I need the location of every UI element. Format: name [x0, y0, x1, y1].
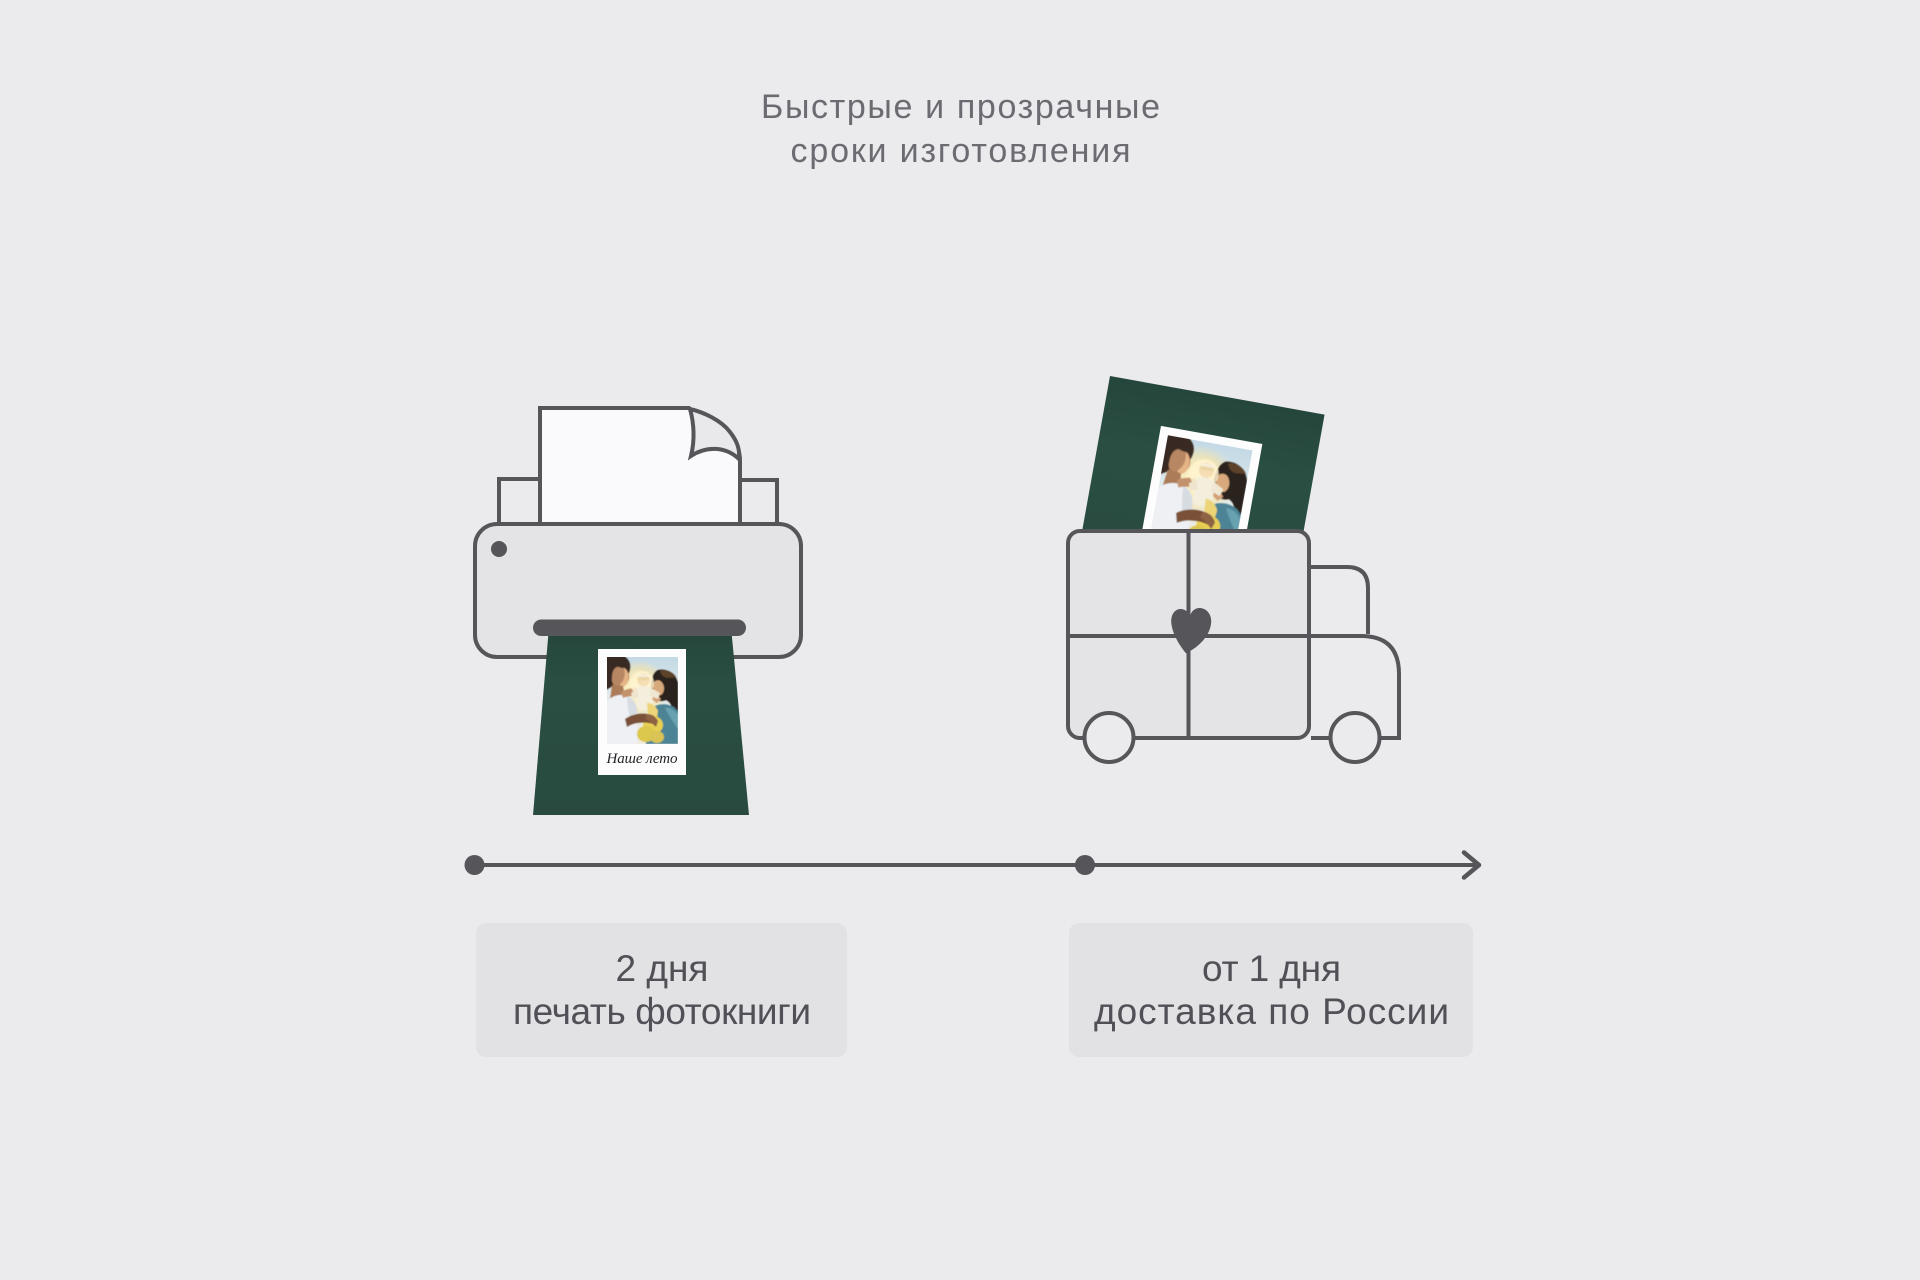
svg-text:от 1 дня: от 1 дня [1202, 948, 1341, 989]
svg-text:Быстрые и прозрачные: Быстрые и прозрачные [761, 88, 1160, 126]
svg-text:доставка по России: доставка по России [1094, 991, 1449, 1032]
svg-text:сроки изготовления: сроки изготовления [791, 132, 1131, 170]
svg-text:2 дня: 2 дня [616, 948, 709, 989]
svg-text:печать фотокниги: печать фотокниги [513, 991, 811, 1032]
svg-text:Наше лето: Наше лето [606, 751, 679, 767]
